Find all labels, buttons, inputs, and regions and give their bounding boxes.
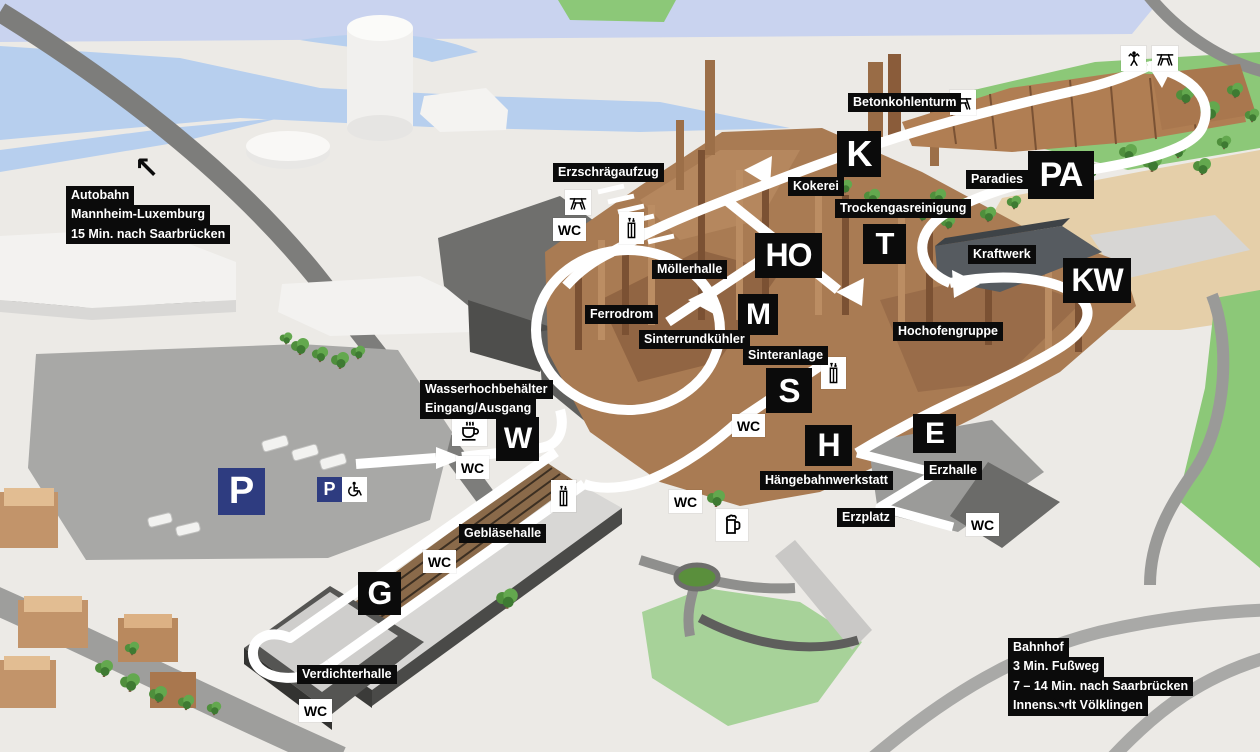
wc-icon: WC [423, 550, 456, 573]
map-overlay: BetonkohlenturmErzschrägaufzugKokereiTro… [0, 0, 1260, 752]
label-erzschraegaufzug: Erzschrägaufzug [553, 163, 664, 182]
elevator-icon [551, 480, 576, 512]
autobahn-note-arrow-icon: ↖ [134, 154, 159, 184]
badge-KW: KW [1063, 258, 1131, 303]
label-erzhalle: Erzhalle [924, 461, 982, 480]
beer-icon [716, 509, 748, 541]
badge-K: K [837, 131, 881, 177]
parking-p: P [317, 477, 342, 502]
badge-W: W [496, 417, 539, 461]
label-geblaesehalle: Gebläsehalle [459, 524, 546, 543]
label-moellerhalle: Möllerhalle [652, 260, 727, 279]
badge-M: M [738, 294, 778, 335]
picnic-icon [1152, 46, 1178, 71]
label-erzplatz: Erzplatz [837, 508, 895, 527]
label-sinteranlage: Sinteranlage [743, 346, 828, 365]
label-ferrodrom: Ferrodrom [585, 305, 658, 324]
wc-icon: WC [299, 699, 332, 722]
wc-icon: WC [553, 218, 586, 241]
label-betonkohlenturm: Betonkohlenturm [848, 93, 961, 112]
coffee-icon [452, 416, 487, 446]
wc-icon: WC [456, 456, 489, 479]
autobahn-note: AutobahnMannheim-Luxemburg15 Min. nach S… [66, 186, 230, 244]
label-kokerei: Kokerei [788, 177, 844, 196]
accessible-parking-icon: P [317, 477, 367, 502]
badge-E: E [913, 414, 956, 453]
bahnhof-note: Bahnhof3 Min. Fußweg7 – 14 Min. nach Saa… [1008, 638, 1193, 716]
site-map: BetonkohlenturmErzschrägaufzugKokereiTro… [0, 0, 1260, 752]
label-paradies: Paradies [966, 170, 1028, 189]
badge-H: H [805, 425, 852, 466]
label-trockengasreinigung: Trockengasreinigung [835, 199, 971, 218]
wc-icon: WC [966, 513, 999, 536]
bahnhof-note-arrow-icon: ↘ [1048, 694, 1073, 724]
label-hochofengruppe: Hochofengruppe [893, 322, 1003, 341]
label-wasserhochbehaelter: WasserhochbehälterEingang/Ausgang [420, 380, 553, 419]
badge-G: G [358, 572, 401, 615]
badge-T: T [863, 224, 906, 264]
wheelchair-icon [342, 477, 367, 502]
climber-icon [1121, 46, 1146, 71]
label-haengebahnwerkstatt: Hängebahnwerkstatt [760, 471, 893, 490]
wc-icon: WC [669, 490, 702, 513]
label-verdichterhalle: Verdichterhalle [297, 665, 397, 684]
elevator-icon [619, 212, 644, 244]
picnic-icon [565, 190, 591, 215]
wc-icon: WC [732, 414, 765, 437]
parking-icon: P [218, 468, 265, 515]
label-sinterrundkuehler: Sinterrundkühler [639, 330, 750, 349]
badge-S: S [766, 368, 812, 413]
badge-HO: HO [755, 233, 822, 278]
label-kraftwerk: Kraftwerk [968, 245, 1036, 264]
badge-PA: PA [1028, 151, 1094, 199]
